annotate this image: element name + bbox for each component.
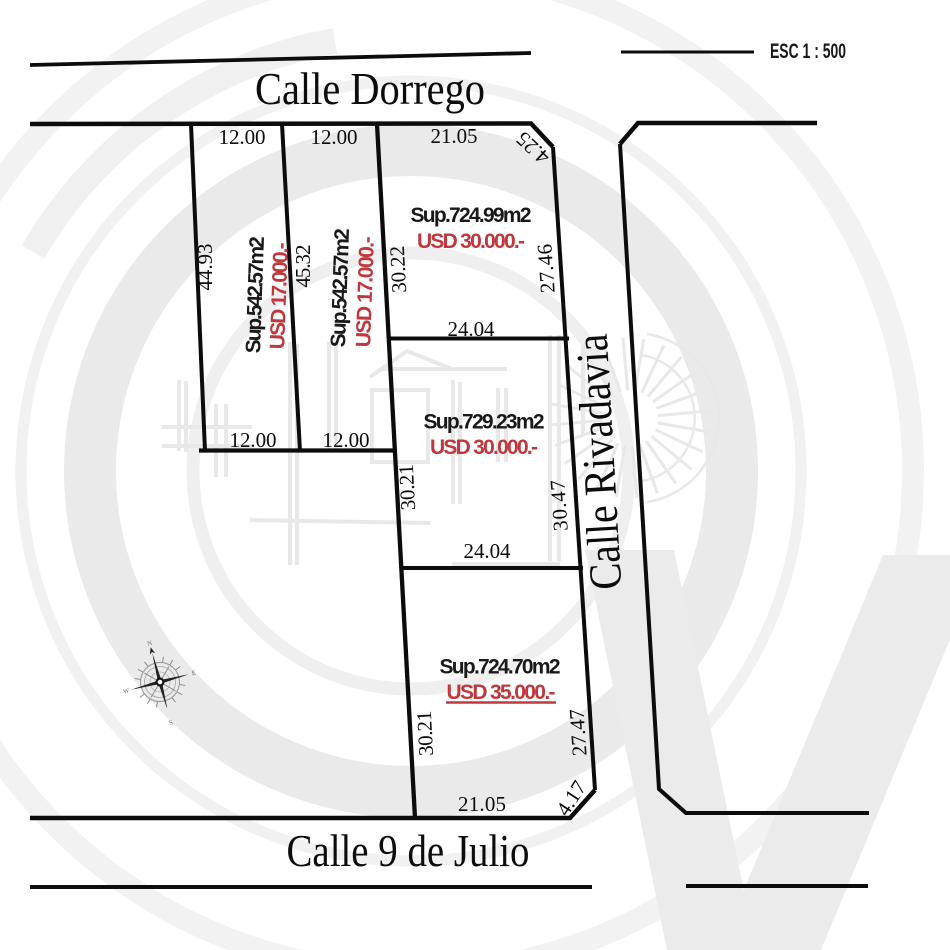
svg-text:12.00: 12.00 (230, 428, 277, 452)
svg-text:30.22: 30.22 (385, 245, 411, 293)
svg-text:12.00: 12.00 (323, 428, 370, 452)
svg-text:ESC 1 : 500: ESC 1 : 500 (770, 40, 846, 63)
svg-text:44.93: 44.93 (193, 244, 217, 291)
svg-text:Sup.724.99m2: Sup.724.99m2 (411, 204, 532, 227)
svg-text:USD 35.000.-: USD 35.000.- (447, 681, 556, 704)
svg-text:12.00: 12.00 (311, 125, 358, 149)
svg-text:27.47: 27.47 (564, 708, 591, 757)
svg-text:24.04: 24.04 (464, 539, 512, 563)
svg-text:30.21: 30.21 (412, 710, 438, 756)
svg-text:Calle 9 de Julio: Calle 9 de Julio (287, 825, 530, 876)
svg-text:45.32: 45.32 (291, 245, 315, 288)
svg-text:Sup.729.23m2: Sup.729.23m2 (424, 411, 545, 434)
svg-text:12.00: 12.00 (219, 125, 266, 149)
svg-text:21.05: 21.05 (458, 792, 506, 816)
svg-text:30.21: 30.21 (394, 464, 420, 511)
svg-text:USD 30.000.-: USD 30.000.- (417, 230, 525, 253)
svg-text:USD 30.000.-: USD 30.000.- (430, 436, 538, 459)
svg-text:21.05: 21.05 (431, 124, 478, 148)
svg-text:27.46: 27.46 (532, 243, 559, 294)
svg-text:Sup.724.70m2: Sup.724.70m2 (440, 656, 561, 679)
svg-text:Calle Dorrego: Calle Dorrego (255, 63, 485, 114)
svg-text:Sup.542.57m2: Sup.542.57m2 (242, 236, 269, 354)
svg-text:USD 17.000.-: USD 17.000.- (266, 242, 293, 350)
svg-text:USD 17.000.-: USD 17.000.- (352, 236, 379, 348)
svg-text:Sup.542.57m2: Sup.542.57m2 (327, 228, 354, 348)
svg-text:30.47: 30.47 (545, 479, 572, 532)
svg-text:24.04: 24.04 (448, 317, 496, 341)
